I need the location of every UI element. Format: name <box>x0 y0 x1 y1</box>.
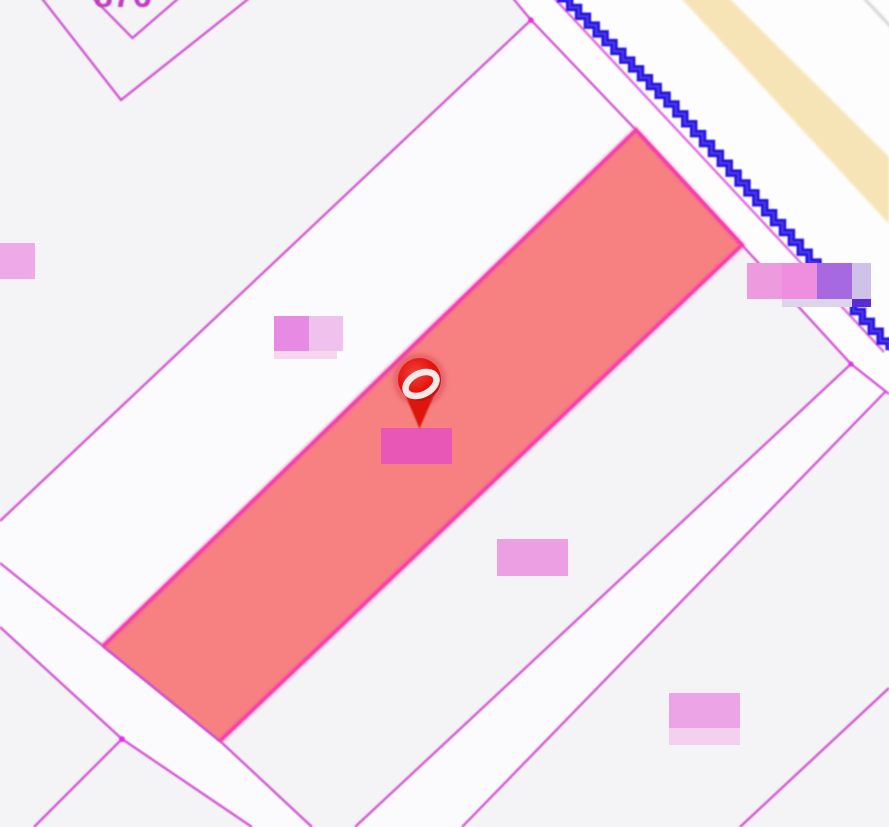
svg-text:876: 876 <box>94 0 152 15</box>
